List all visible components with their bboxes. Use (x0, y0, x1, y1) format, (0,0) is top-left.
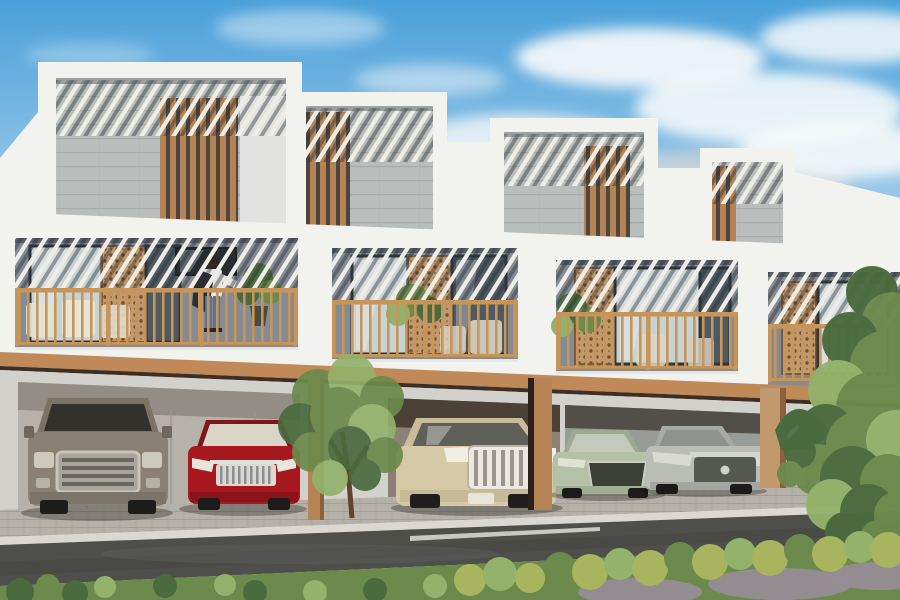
car-grille (588, 462, 646, 488)
townhouse-render (0, 0, 900, 600)
car-wheel (656, 484, 678, 494)
pergola-slats (712, 162, 783, 204)
railing (556, 312, 738, 370)
license-plate (468, 493, 494, 504)
car-windshield (202, 424, 288, 447)
pergola-shade (15, 238, 298, 290)
car-wheel (410, 494, 440, 508)
car-wheel (198, 498, 220, 510)
car-wheel (128, 500, 156, 514)
pergola-shade (332, 248, 518, 302)
railing (15, 288, 298, 346)
car-headlight (444, 447, 468, 462)
soffit-shadow (56, 78, 286, 84)
emblem (721, 466, 730, 475)
car-wheel (562, 488, 582, 498)
car-headlight (34, 452, 54, 468)
car-suv-grey-brown (21, 398, 173, 521)
pergola-slats (504, 134, 644, 186)
balcony-unit-1 (15, 238, 298, 350)
car-wheel (730, 484, 752, 494)
balcony-unit-2 (332, 248, 518, 362)
car-wheel (40, 500, 68, 514)
railing (332, 300, 518, 358)
balcony-unit-3 (551, 260, 738, 374)
pergola-slats (306, 108, 433, 162)
car-headlight (142, 452, 162, 468)
car-windshield (568, 434, 636, 453)
car-wheel (268, 498, 290, 510)
pergola-slats (56, 80, 286, 136)
car-windshield (44, 404, 152, 431)
pergola-shade (556, 260, 738, 314)
